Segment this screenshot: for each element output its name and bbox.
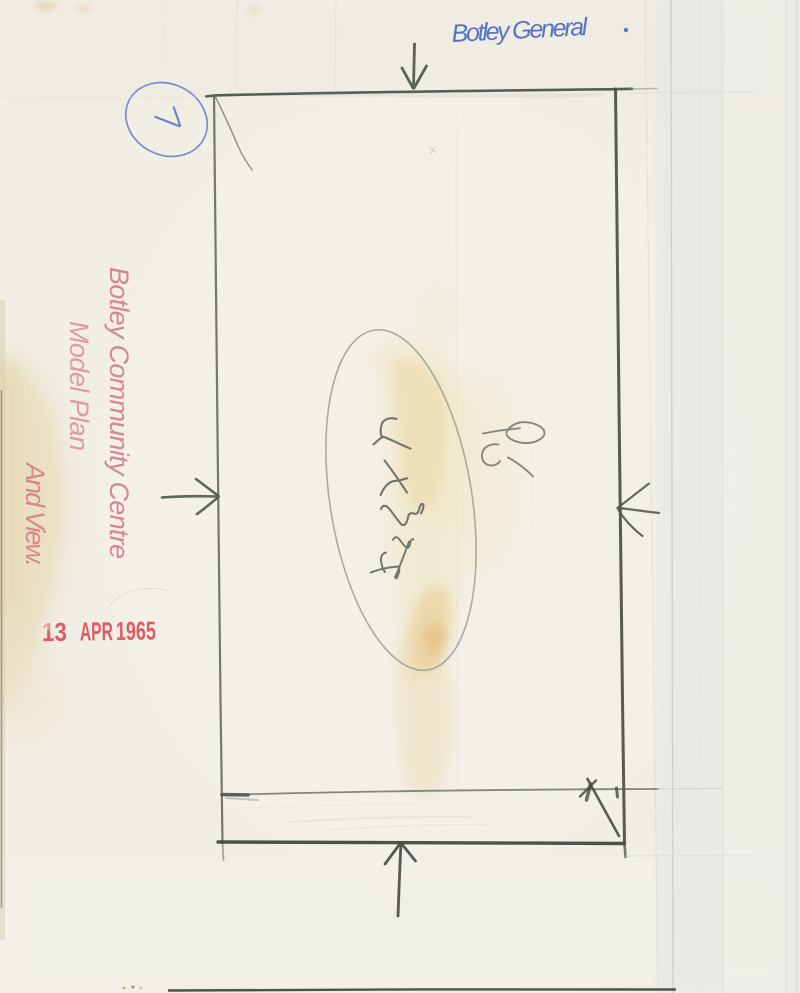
- svg-text:And View.: And View.: [20, 461, 50, 567]
- svg-text:1965: 1965: [116, 615, 156, 646]
- svg-text:Botley Community Centre: Botley Community Centre: [104, 267, 134, 559]
- svg-text:APR: APR: [80, 616, 114, 646]
- svg-text:Model Plan: Model Plan: [64, 321, 94, 451]
